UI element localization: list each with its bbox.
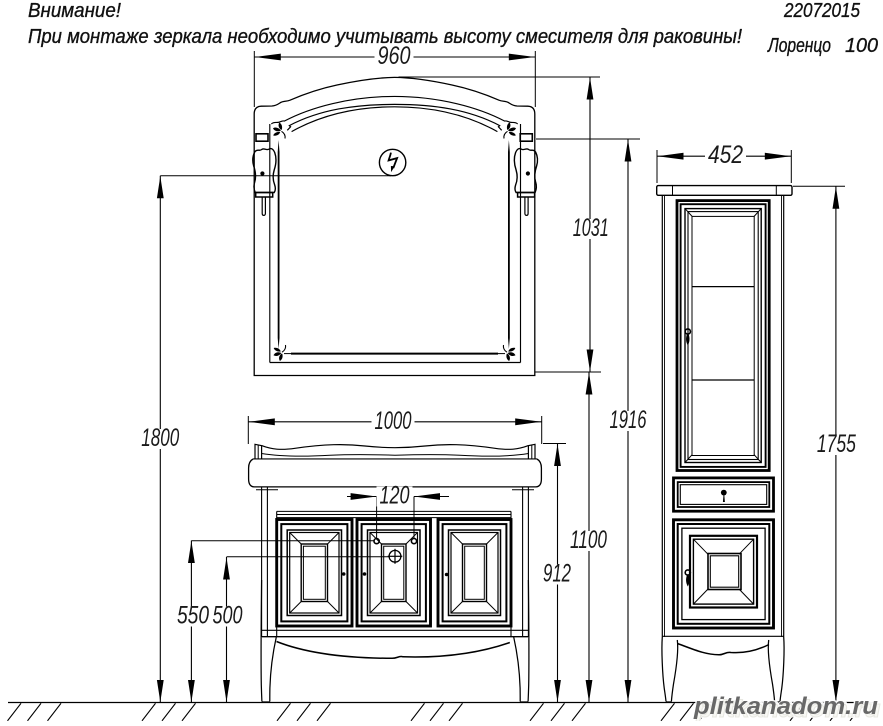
- svg-text:22072015: 22072015: [783, 0, 861, 22]
- svg-text:1755: 1755: [817, 430, 856, 458]
- svg-text:960: 960: [378, 42, 411, 70]
- svg-text:plitkanadom.ru: plitkanadom.ru: [693, 693, 878, 720]
- svg-text:1031: 1031: [573, 214, 609, 242]
- svg-text:500: 500: [213, 602, 243, 630]
- svg-text:100: 100: [845, 35, 878, 57]
- svg-text:550: 550: [177, 602, 209, 630]
- svg-text:1100: 1100: [570, 526, 607, 554]
- svg-text:120: 120: [380, 482, 410, 510]
- svg-text:Лоренцо: Лоренцо: [766, 35, 831, 57]
- svg-text:452: 452: [708, 141, 743, 169]
- svg-text:Внимание!: Внимание!: [28, 0, 121, 22]
- svg-text:1800: 1800: [141, 424, 179, 452]
- svg-text:912: 912: [543, 560, 571, 588]
- svg-text:1916: 1916: [610, 406, 647, 434]
- svg-text:1000: 1000: [375, 407, 412, 435]
